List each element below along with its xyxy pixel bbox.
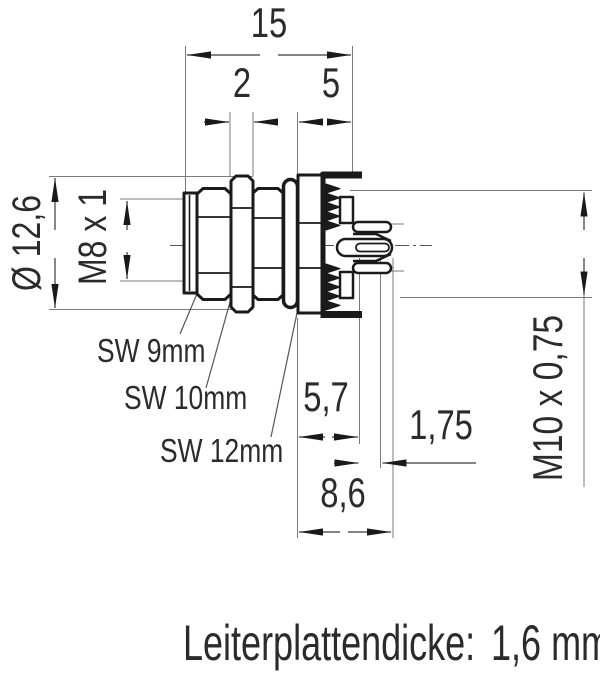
sw10-hex-nut [231, 176, 253, 312]
dim-depth-to-board: 5,7 [279, 376, 373, 418]
mid-body [253, 189, 283, 300]
snap-arm-top [353, 222, 391, 232]
snap-arm-bottom [353, 263, 391, 273]
label-sw10: SW 10mm [124, 381, 247, 414]
center-pin-inner [356, 244, 389, 252]
dim-front-thread: M8 x 1 [73, 173, 113, 301]
technical-drawing-page: 15 2 5 Ø 12,6 M8 x 1 M10 x 0,75 SW 9mm S… [0, 0, 600, 675]
dim-panel-thread: M10 x 0,75 [527, 310, 569, 486]
dim-nut-width: 2 [195, 62, 289, 104]
pcb-thickness-value: 1,6 mm [491, 618, 600, 668]
sw12-panel-nut [298, 175, 322, 313]
o-ring [284, 180, 298, 308]
connector-body [184, 172, 392, 318]
insulator-bottom [340, 272, 353, 298]
label-sw9: SW 9mm [97, 334, 206, 367]
dim-total-length: 15 [222, 2, 316, 44]
dim-flange-diameter: Ø 12,6 [7, 179, 47, 307]
pcb-thickness-note: Leiterplattendicke: 1,6 mm [183, 618, 600, 668]
pcb-thickness-label: Leiterplattendicke: [183, 618, 475, 668]
lock-teeth-top [326, 184, 340, 230]
dim-pin-offset: 1,75 [394, 404, 488, 446]
lock-teeth-bottom [326, 264, 340, 310]
dim-pin-length: 8,6 [296, 472, 390, 514]
sw9-hex-section [197, 189, 231, 300]
dim-rear-section: 5 [284, 62, 378, 104]
label-sw12: SW 12mm [160, 434, 283, 467]
insulator-top [340, 197, 353, 223]
